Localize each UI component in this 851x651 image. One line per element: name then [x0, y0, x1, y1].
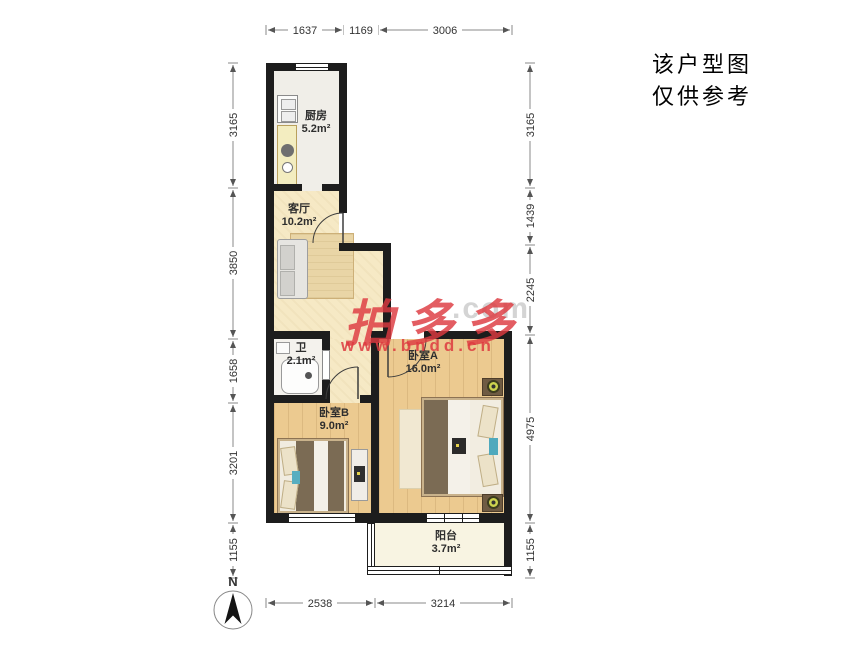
floorplan-canvas: 厨房 5.2m² 客厅 10.2m² 卫 2.1m² 卧室B 9.0m² 卧室A…: [0, 0, 851, 651]
balcony-label: 阳台 3.7m²: [432, 530, 461, 556]
wall-kitchen-top-left: [266, 63, 295, 71]
bath-door-leaf: [322, 350, 330, 380]
living-name: 客厅: [282, 203, 317, 216]
kitchen-sink: [281, 144, 294, 157]
watermark-url: www.bndd.cn: [341, 336, 495, 356]
wall-bedroom-b-top-right: [360, 395, 371, 403]
lamp-bottom: [487, 496, 500, 509]
bedroom-a-bed: [421, 397, 504, 497]
dim-right-2: 1439: [525, 204, 537, 228]
wall-kitchen-divider-right: [322, 184, 347, 191]
wall-bedroom-b-bottom-left: [266, 513, 288, 523]
dim-bottom-2: 3214: [431, 598, 455, 610]
dim-right-4: 4975: [525, 417, 537, 441]
living-label: 客厅 10.2m²: [282, 203, 317, 229]
wall-kitchen-divider-left: [266, 184, 302, 191]
wall-bath-top: [266, 331, 330, 339]
bedroom-b-window: [288, 513, 356, 523]
wall-bedroom-a-bottom-left: [379, 513, 426, 523]
bath-name: 卫: [287, 342, 316, 355]
dimension-chain-top: 1637 1169 3006: [266, 24, 512, 37]
dim-right-1: 3165: [525, 113, 537, 137]
dim-top-3: 3006: [433, 25, 457, 37]
wall-bath-right-upper: [322, 331, 330, 350]
compass-north-label: N: [228, 574, 237, 589]
reference-note-line2: 仅供参考: [652, 82, 752, 114]
dim-left-3: 1658: [228, 359, 240, 383]
compass: N: [214, 574, 252, 629]
dim-left-4: 3201: [228, 451, 240, 475]
bedroom-a-area: 16.0m²: [406, 363, 441, 376]
bath-label: 卫 2.1m²: [287, 342, 316, 368]
balcony-sliding-door: [426, 513, 480, 523]
dim-left-1: 3165: [228, 113, 240, 137]
balcony-area: 3.7m²: [432, 543, 461, 556]
bedroom-b-area: 9.0m²: [319, 420, 349, 433]
wall-right-outer: [504, 331, 512, 576]
bedroom-b-name: 卧室B: [319, 407, 349, 420]
wall-bedroom-b-bottom-right: [356, 513, 379, 523]
compass-needle-icon: [225, 593, 242, 624]
compass-circle: [214, 591, 252, 629]
balcony-left-window: [367, 523, 375, 568]
dim-top-2: 1169: [349, 25, 373, 37]
dim-left-5: 1155: [228, 538, 240, 562]
dimension-chain-left: 3165 3850 1658 3201 1155: [227, 63, 240, 578]
balcony-name: 阳台: [432, 530, 461, 543]
kitchen-area: 5.2m²: [302, 123, 331, 136]
dimension-chain-bottom: 2538 3214: [266, 597, 512, 610]
dim-top-1: 1637: [293, 25, 317, 37]
kitchen-window: [295, 63, 329, 71]
wall-bedroom-divider: [371, 331, 379, 523]
wall-left: [266, 63, 274, 523]
reference-note-line1: 该户型图: [652, 50, 752, 82]
bath-area: 2.1m²: [287, 355, 316, 368]
dim-bottom-1: 2538: [308, 598, 332, 610]
bedroom-b-label: 卧室B 9.0m²: [319, 407, 349, 433]
reference-note: 该户型图 仅供参考: [652, 50, 752, 114]
bedroom-b-bed: [277, 438, 349, 514]
kitchen-pot: [282, 162, 293, 173]
wall-bath-bottom: [266, 395, 330, 403]
lamp-top: [487, 380, 500, 393]
kitchen-counter: [277, 125, 297, 191]
kitchen-label: 厨房 5.2m²: [302, 110, 331, 136]
wall-bedroom-a-bottom-right: [480, 513, 512, 523]
kitchen-name: 厨房: [302, 110, 331, 123]
stove: [277, 95, 298, 123]
bedroom-b-dresser: [351, 449, 368, 501]
balcony-bottom-window: [367, 566, 512, 575]
sofa: [277, 239, 308, 299]
living-area: 10.2m²: [282, 216, 317, 229]
dim-right-5: 1155: [525, 538, 537, 562]
dim-left-2: 3850: [228, 251, 240, 275]
